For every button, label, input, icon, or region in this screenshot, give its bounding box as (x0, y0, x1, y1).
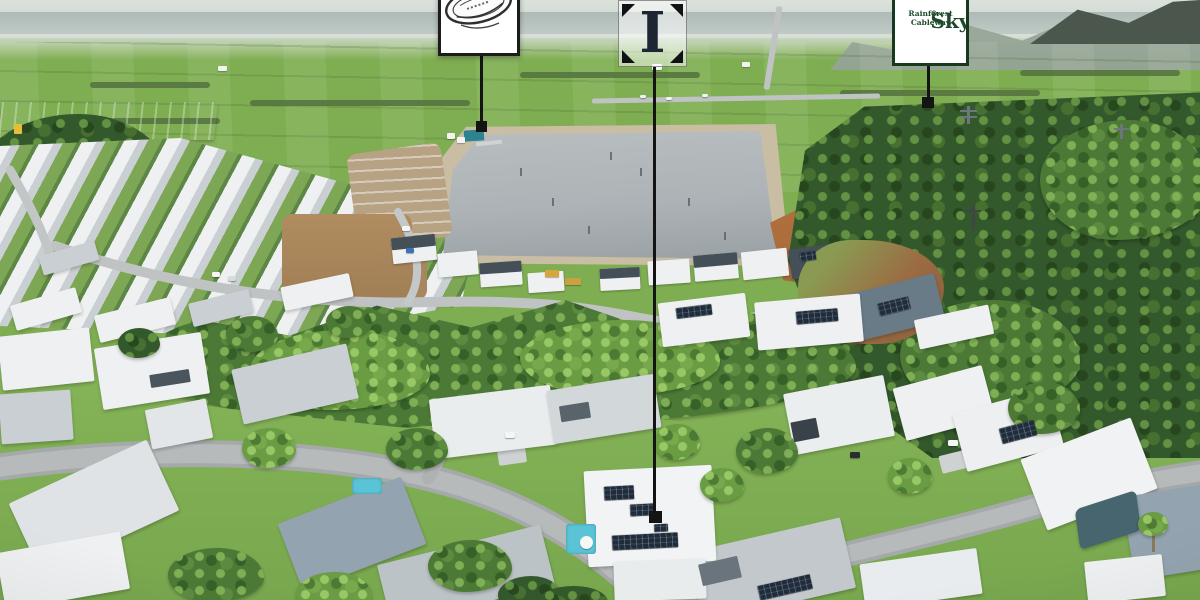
car-dark (850, 452, 860, 458)
car (505, 432, 515, 438)
house-roof (1084, 554, 1166, 600)
callout-box-park-emblem (438, 0, 520, 56)
construction-house (391, 234, 437, 264)
callout-endpoint-park (476, 121, 487, 132)
tree (654, 424, 700, 460)
solar-panels (654, 524, 668, 533)
callout-line-park (480, 54, 483, 122)
car (948, 440, 958, 446)
palm-trunk (1152, 534, 1155, 552)
street-left-edge (10, 170, 52, 262)
tree (428, 540, 512, 592)
house-roof (0, 327, 95, 390)
tree (700, 468, 744, 502)
insignia-letter: I (639, 5, 665, 61)
skyrail-tower-arm (960, 110, 977, 112)
tree (242, 428, 296, 468)
tree (736, 428, 798, 474)
car (702, 94, 708, 97)
construction-house (693, 252, 739, 282)
construction-house (599, 267, 640, 291)
shipping-container (545, 270, 559, 277)
house-lower-wing-roof (613, 558, 706, 600)
construction-house (479, 261, 523, 288)
power-pole-crossarm (966, 210, 981, 212)
marquee-tent (457, 137, 465, 143)
skyrail-tower-arm (1114, 128, 1129, 130)
marquee-tent (447, 133, 455, 139)
skyrail-tower (1120, 124, 1123, 139)
construction-house (741, 248, 790, 281)
callout-line-skyrail (927, 64, 930, 98)
tree (386, 428, 448, 470)
skyrail-tower (967, 106, 970, 124)
swimming-pool (352, 478, 382, 494)
car (228, 276, 236, 281)
corner-bracket-icon (622, 50, 635, 63)
tree (168, 548, 264, 600)
aerial-photo: I Skyrail® Rainforest Cableway (0, 0, 1200, 600)
pool-umbrella (580, 536, 593, 549)
callout-box-insignia: I (618, 0, 687, 67)
callout-endpoint-skyrail (922, 97, 934, 108)
corner-bracket-icon (670, 4, 683, 17)
registered-mark: ® (931, 9, 938, 18)
car (640, 95, 646, 98)
tree (226, 316, 278, 352)
house-roof (0, 390, 74, 445)
tree (118, 328, 160, 358)
car (402, 226, 410, 231)
callout-endpoint-insignia (649, 511, 662, 523)
callout-line-insignia (653, 67, 656, 511)
shipping-container (565, 278, 581, 285)
skyrail-tower-arm (960, 116, 977, 118)
corner-bracket-icon (622, 4, 635, 17)
tree (326, 306, 372, 338)
corner-bracket-icon (670, 50, 683, 63)
palm-tree (1138, 512, 1168, 536)
park-emblem-sketch (441, 0, 517, 53)
construction-house (437, 250, 479, 277)
callout-box-skyrail: Skyrail® Rainforest Cableway (892, 0, 969, 66)
car (666, 97, 672, 100)
car (406, 248, 414, 253)
tree (888, 458, 932, 494)
car (212, 272, 220, 277)
solar-panels (604, 485, 635, 501)
